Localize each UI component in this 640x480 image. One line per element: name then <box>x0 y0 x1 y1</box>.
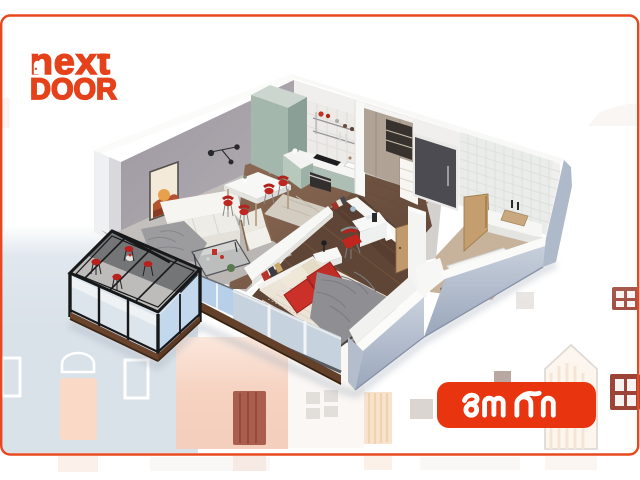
svg-text:DOOR: DOOR <box>30 73 117 106</box>
